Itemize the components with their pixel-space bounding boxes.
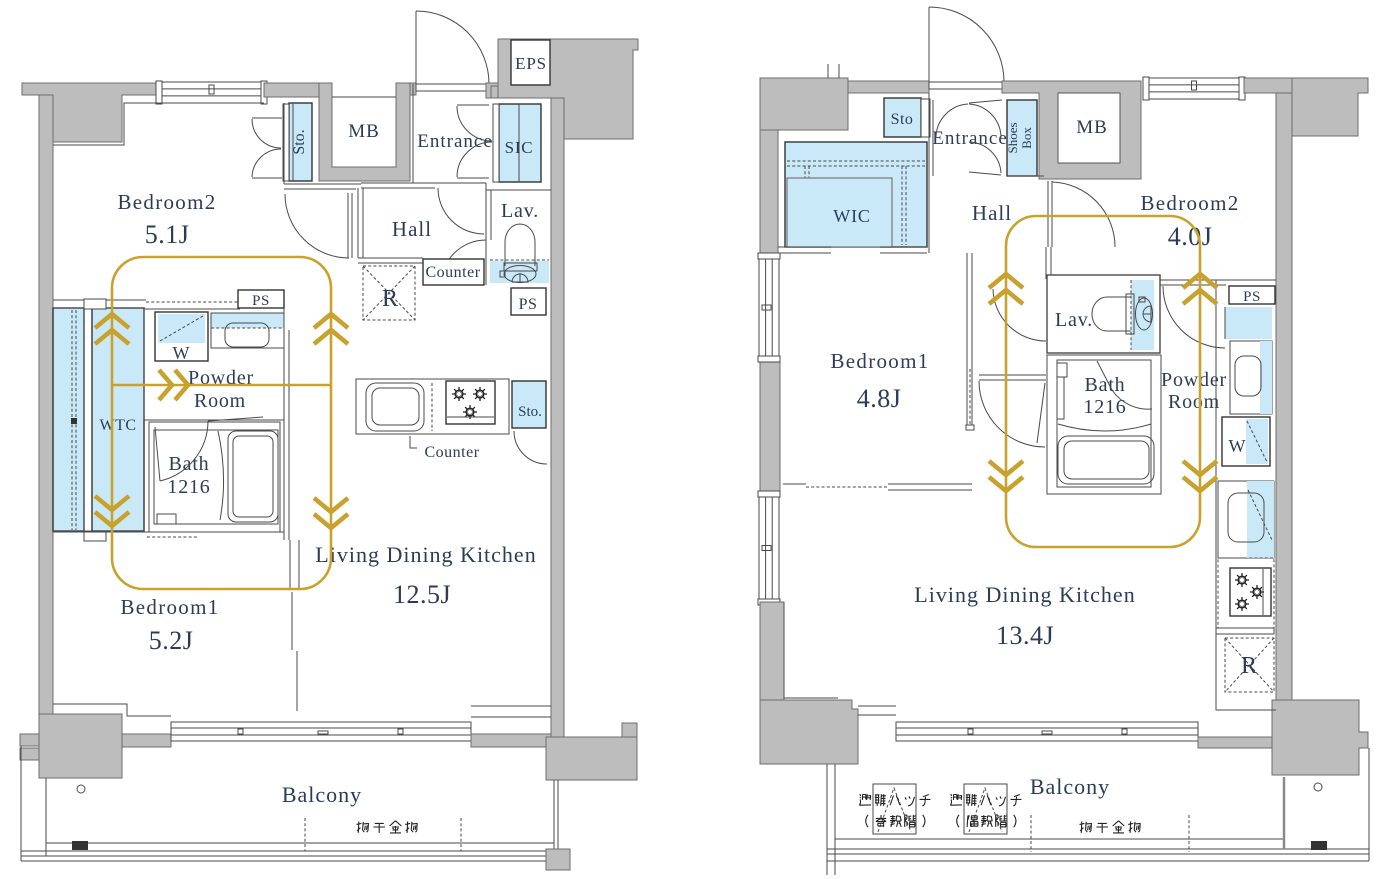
svg-text:Entrance: Entrance [932,128,1008,149]
svg-text:Hall: Hall [972,201,1012,225]
svg-text:EPS: EPS [515,54,547,73]
svg-text:MB: MB [1076,117,1108,138]
svg-text:MB: MB [348,121,380,142]
svg-text:PS: PS [1243,289,1261,305]
svg-text:Entrance: Entrance [417,131,493,152]
svg-text:W: W [1229,436,1246,456]
svg-text:PS: PS [519,296,538,313]
svg-text:Balcony: Balcony [1030,774,1110,799]
svg-text:Sto.: Sto. [291,129,308,154]
svg-text:SIC: SIC [505,138,534,157]
svg-text:5.2J: 5.2J [149,626,194,655]
svg-text:Living Dining Kitchen: Living Dining Kitchen [315,542,536,567]
svg-text:Bedroom2: Bedroom2 [1140,191,1239,215]
svg-text:5.1J: 5.1J [145,220,190,249]
svg-text:Living Dining Kitchen: Living Dining Kitchen [914,582,1135,607]
svg-text:Bath: Bath [169,453,210,475]
svg-text:Counter: Counter [424,444,479,461]
svg-text:Balcony: Balcony [282,782,362,807]
svg-text:Sto.: Sto. [518,404,542,420]
svg-text:Bedroom1: Bedroom1 [830,349,929,373]
svg-text:Bedroom2: Bedroom2 [117,190,216,214]
svg-text:Sto: Sto [891,111,914,128]
svg-text:WTC: WTC [99,417,136,434]
svg-text:W: W [173,343,190,363]
svg-text:Lav.: Lav. [501,200,539,222]
svg-text:WIC: WIC [833,206,870,226]
svg-text:PS: PS [252,293,270,309]
svg-text:Lav.: Lav. [1055,309,1093,331]
svg-text:R: R [1241,653,1257,679]
svg-text:13.4J: 13.4J [996,621,1054,650]
svg-text:Bedroom1: Bedroom1 [120,595,219,619]
svg-text:Box: Box [1019,127,1034,149]
svg-text:Room: Room [194,390,246,412]
svg-text:Counter: Counter [425,264,480,281]
svg-text:Room: Room [1168,391,1220,413]
svg-text:Powder: Powder [1161,369,1227,391]
svg-text:Shoes: Shoes [1005,122,1020,153]
svg-text:4.8J: 4.8J [857,384,902,413]
svg-text:R: R [382,286,398,312]
svg-text:12.5J: 12.5J [393,580,451,609]
svg-text:1216: 1216 [167,476,210,498]
svg-text:Hall: Hall [392,217,432,241]
svg-text:4.0J: 4.0J [1168,222,1213,251]
